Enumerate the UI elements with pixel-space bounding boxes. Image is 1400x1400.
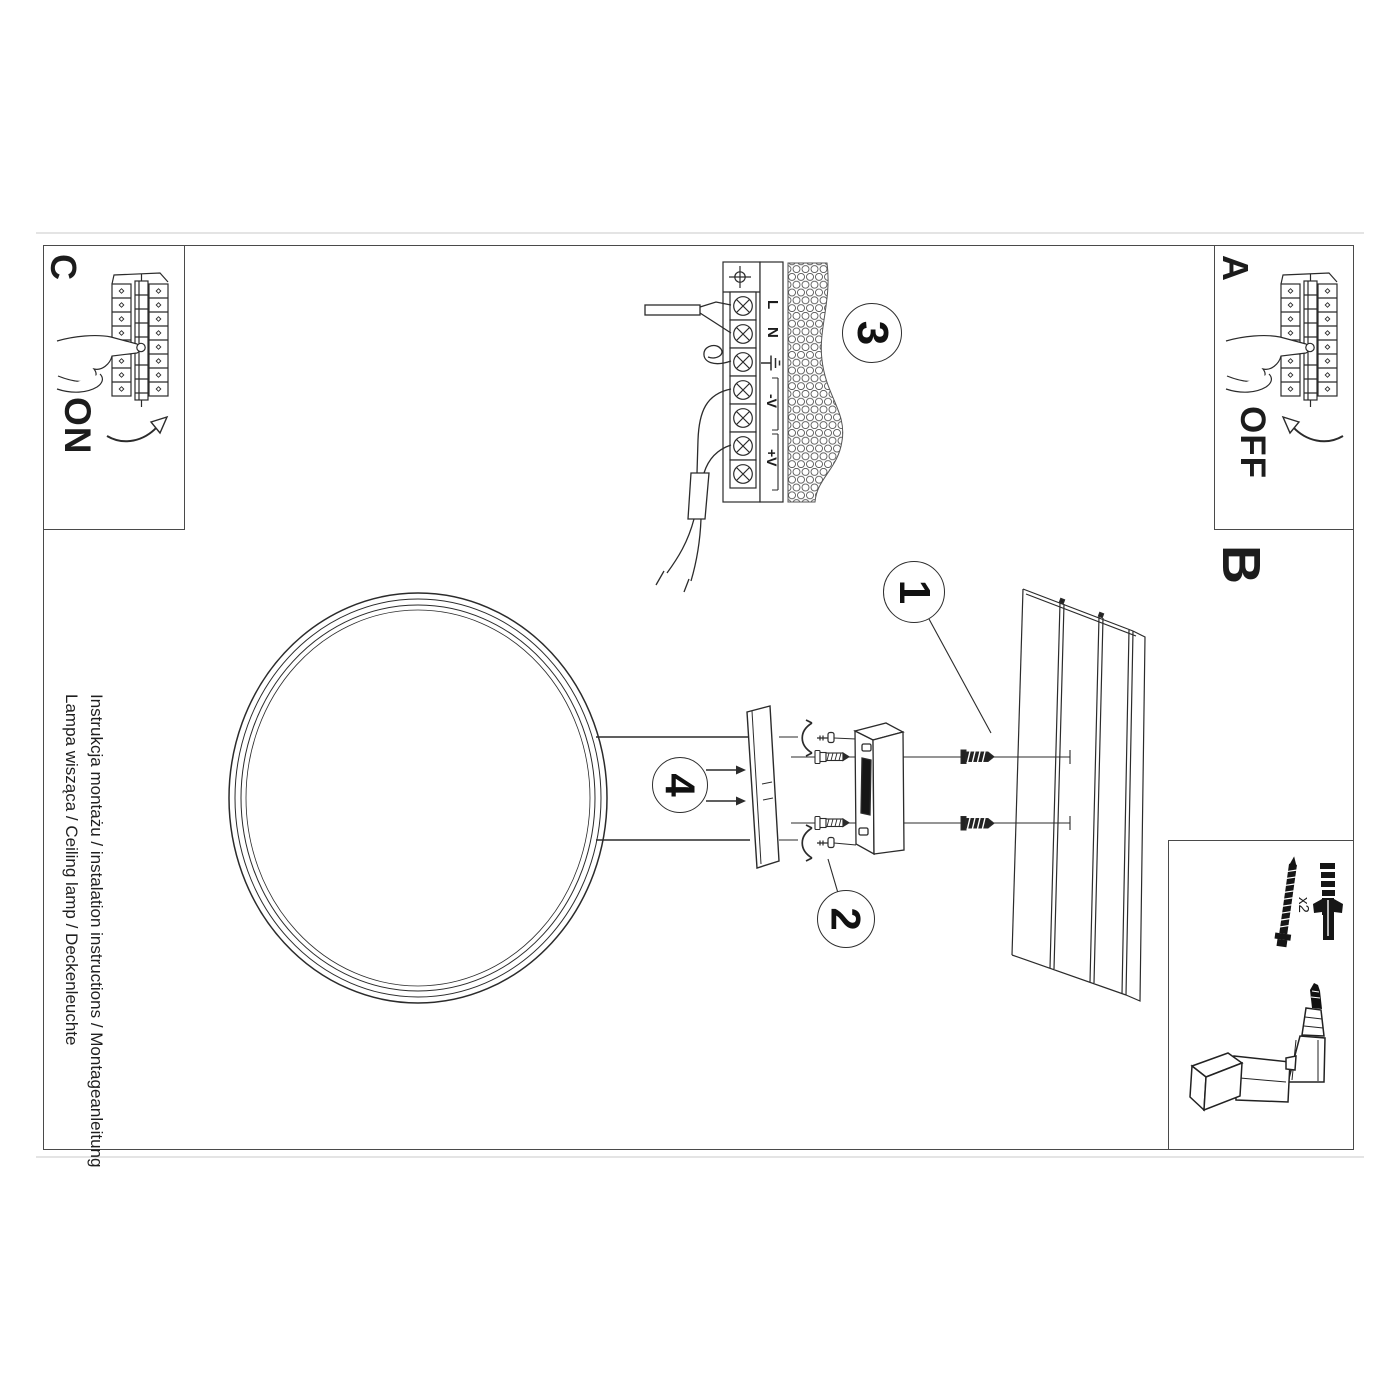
step-3-number: 3 [847, 321, 897, 345]
step-4-number: 4 [656, 773, 704, 796]
step-3-badge: 3 [842, 303, 902, 363]
step-4-badge: 4 [652, 757, 708, 813]
terminal-label-v-minus: -V [764, 394, 780, 408]
panel-a-box [1214, 245, 1354, 530]
panel-c-label: C [43, 254, 84, 281]
footer-instructions-line: Instrukcja montażu / instalation instruc… [86, 694, 106, 1167]
panel-a-state-off: OFF [1232, 406, 1272, 479]
step-1-number: 1 [889, 580, 939, 604]
panel-b-label: B [1210, 545, 1272, 585]
panel-c-state-on: ON [55, 397, 98, 455]
step-2-number: 2 [822, 907, 870, 930]
panel-a-label: A [1215, 255, 1256, 282]
terminal-label-live: L [764, 300, 781, 309]
footer-product-line: Lampa wisząca / Ceiling lamp / Deckenleu… [61, 694, 81, 1046]
panel-c-box [43, 245, 185, 530]
anchor-quantity-label: x2 [1295, 897, 1312, 913]
terminal-label-v-plus: +V [764, 449, 780, 467]
step-2-badge: 2 [817, 890, 875, 948]
hardware-box [1168, 840, 1354, 1150]
drawing-sheet-frame [43, 245, 1354, 1150]
manual-page: C ON A OFF B L N -V +V x2 Instrukcja mon… [0, 0, 1400, 1400]
step-1-badge: 1 [883, 561, 945, 623]
terminal-label-neutral: N [764, 327, 781, 338]
